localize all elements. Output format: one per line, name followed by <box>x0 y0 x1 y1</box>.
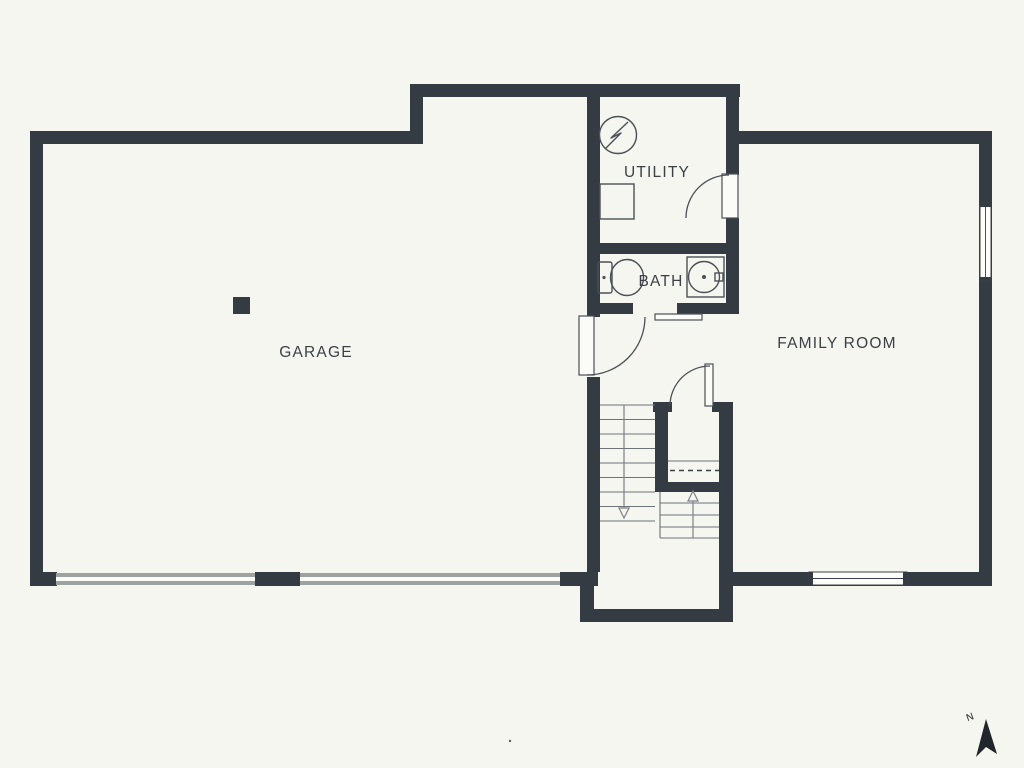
wall-stair-landing-bar <box>655 482 726 492</box>
garage-door-stripe <box>56 573 255 577</box>
window-right-wall <box>980 203 991 281</box>
wall-utility-right-lower <box>726 218 739 314</box>
garage-door-2 <box>300 573 560 585</box>
stairs-down <box>600 405 655 521</box>
family-closet-door <box>670 364 713 406</box>
wall-garage-bottom-1 <box>30 572 57 586</box>
utility-door <box>686 174 738 218</box>
utility-label: UTILITY <box>624 164 690 181</box>
wall-left <box>30 131 43 586</box>
wall-bath-bottom-right <box>677 303 735 314</box>
toilet-flush-dot <box>602 276 605 279</box>
electrical-panel-icon <box>600 117 637 154</box>
toilet-icon <box>598 260 644 296</box>
wall-family-top <box>735 131 992 144</box>
door-swing-arc <box>587 317 645 375</box>
window-cap <box>980 203 991 207</box>
door-leaf <box>705 364 713 406</box>
garage-hall-door <box>579 316 645 375</box>
wall-upper-top <box>410 84 740 97</box>
bath-sliding-door <box>655 314 702 320</box>
window-cap <box>903 572 907 585</box>
north-arrow-pointer <box>976 719 997 757</box>
floor-plan: GARAGE UTILITY BATH FAMILY ROOM N <box>0 0 1024 768</box>
door-leaf <box>579 316 594 375</box>
bath-label: BATH <box>639 273 684 290</box>
window-cap <box>980 277 991 281</box>
wall-utility-bath-divider <box>587 243 735 254</box>
stairs-up-arrowhead <box>688 491 698 501</box>
wall-garage-top <box>30 131 423 144</box>
stairs-up <box>660 461 719 538</box>
water-heater-icon <box>600 184 634 219</box>
north-arrow-icon: N <box>965 711 997 757</box>
garage-door-1 <box>56 573 255 585</box>
floor-plan-canvas: GARAGE UTILITY BATH FAMILY ROOM N <box>0 0 1024 768</box>
wall-right <box>979 131 992 586</box>
sliding-door-leaf <box>655 314 702 320</box>
stairs-down-arrowhead <box>619 508 629 518</box>
wall-closet-left <box>655 402 668 492</box>
walls <box>30 84 992 622</box>
wall-garage-bottom-3 <box>560 572 598 586</box>
garage-post <box>233 297 250 314</box>
door-leaf <box>722 174 738 218</box>
door-swing-arc <box>670 366 710 406</box>
garage-door-stripe <box>300 581 560 585</box>
family-room-label: FAMILY ROOM <box>777 335 896 352</box>
page-speck <box>509 740 511 742</box>
wall-bath-bottom-left <box>587 303 633 314</box>
wall-stairwell-bump-bottom <box>580 609 733 622</box>
sink-drain-dot <box>702 275 706 279</box>
sink-icon <box>687 257 724 297</box>
lightning-bolt <box>605 122 628 149</box>
window-family-bottom <box>809 572 907 585</box>
wall-garage-bottom-2 <box>255 572 300 586</box>
garage-door-stripe <box>56 581 255 585</box>
window-cap <box>809 572 813 585</box>
garage-label: GARAGE <box>279 344 353 361</box>
wall-garage-stair <box>587 377 600 572</box>
garage-door-stripe <box>300 573 560 577</box>
north-letter: N <box>965 711 976 724</box>
